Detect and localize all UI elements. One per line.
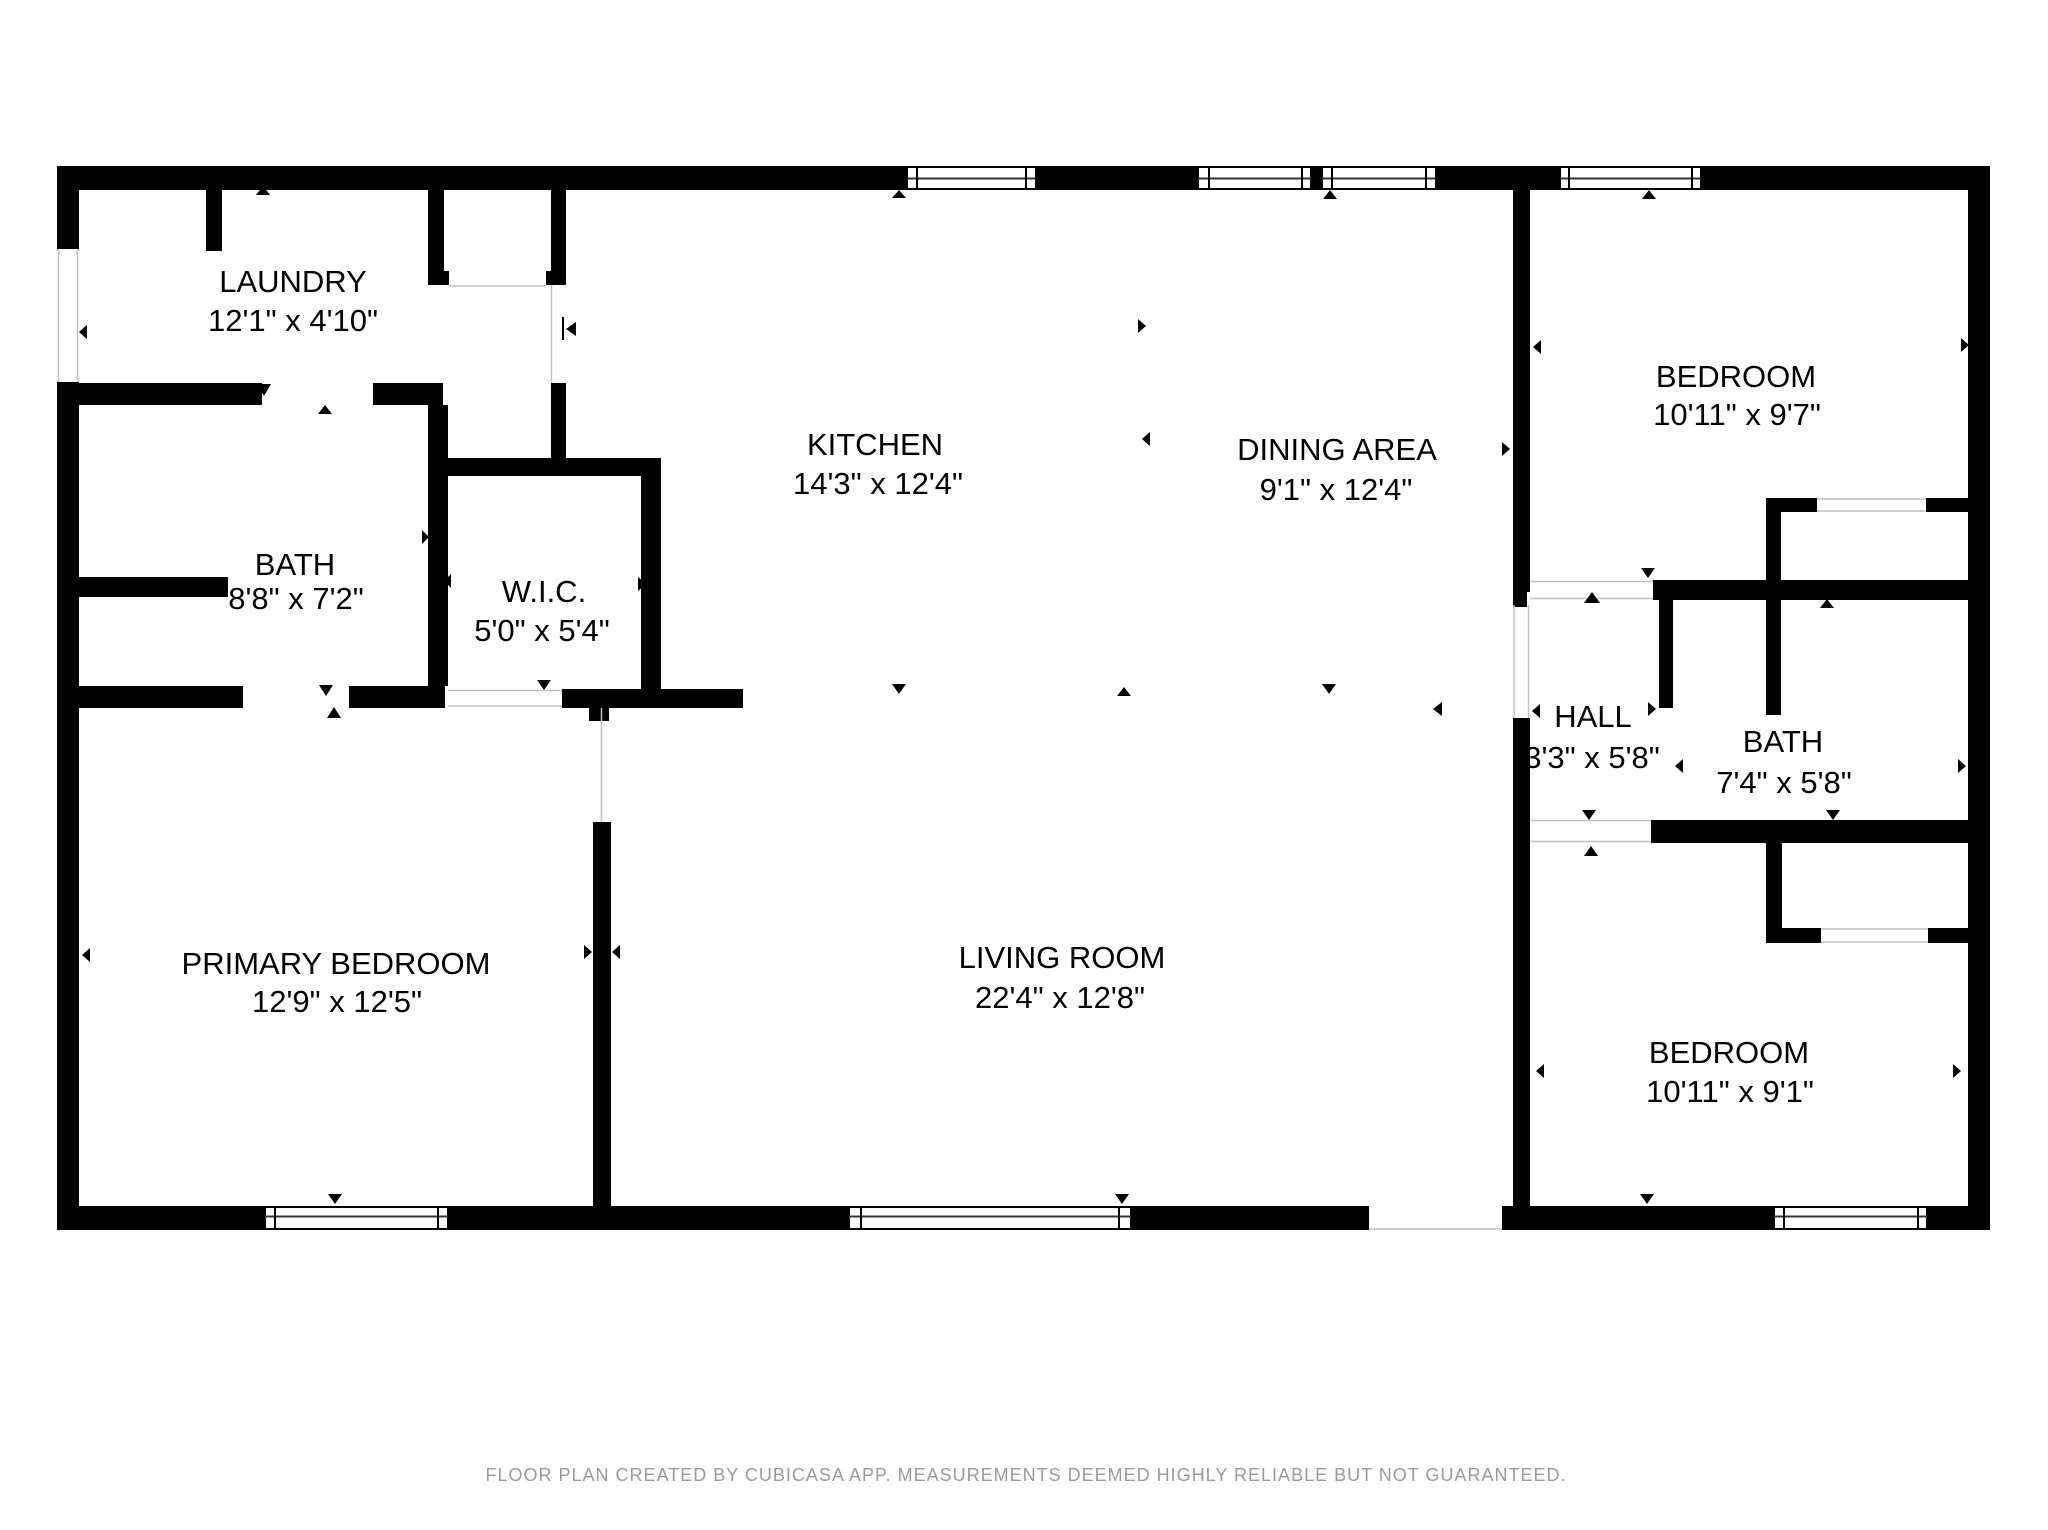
svg-text:BATH: BATH xyxy=(1743,724,1823,759)
svg-text:7'4" x 5'8": 7'4" x 5'8" xyxy=(1716,765,1852,800)
svg-text:10'11" x 9'1": 10'11" x 9'1" xyxy=(1646,1074,1814,1109)
svg-text:HALL: HALL xyxy=(1554,699,1632,734)
svg-text:8'8" x 7'2": 8'8" x 7'2" xyxy=(228,581,364,616)
svg-text:DINING AREA: DINING AREA xyxy=(1237,432,1437,467)
svg-text:12'1" x 4'10": 12'1" x 4'10" xyxy=(208,303,378,338)
svg-text:KITCHEN: KITCHEN xyxy=(807,427,943,462)
svg-text:W.I.C.: W.I.C. xyxy=(502,574,586,609)
svg-text:BATH: BATH xyxy=(255,547,335,582)
svg-text:LIVING ROOM: LIVING ROOM xyxy=(959,940,1166,975)
svg-text:LAUNDRY: LAUNDRY xyxy=(219,264,367,299)
svg-text:14'3" x 12'4": 14'3" x 12'4" xyxy=(793,466,963,501)
svg-text:FLOOR PLAN CREATED BY CUBICASA: FLOOR PLAN CREATED BY CUBICASA APP. MEAS… xyxy=(486,1465,1567,1485)
svg-text:10'11" x 9'7": 10'11" x 9'7" xyxy=(1653,397,1821,432)
svg-text:BEDROOM: BEDROOM xyxy=(1656,359,1816,394)
svg-text:22'4" x 12'8": 22'4" x 12'8" xyxy=(975,980,1145,1015)
svg-text:3'3" x 5'8": 3'3" x 5'8" xyxy=(1524,740,1660,775)
svg-text:12'9" x 12'5": 12'9" x 12'5" xyxy=(252,984,422,1019)
svg-text:BEDROOM: BEDROOM xyxy=(1649,1035,1809,1070)
svg-text:PRIMARY BEDROOM: PRIMARY BEDROOM xyxy=(182,946,491,981)
svg-text:9'1" x 12'4": 9'1" x 12'4" xyxy=(1260,472,1413,507)
svg-text:5'0" x 5'4": 5'0" x 5'4" xyxy=(474,613,610,648)
